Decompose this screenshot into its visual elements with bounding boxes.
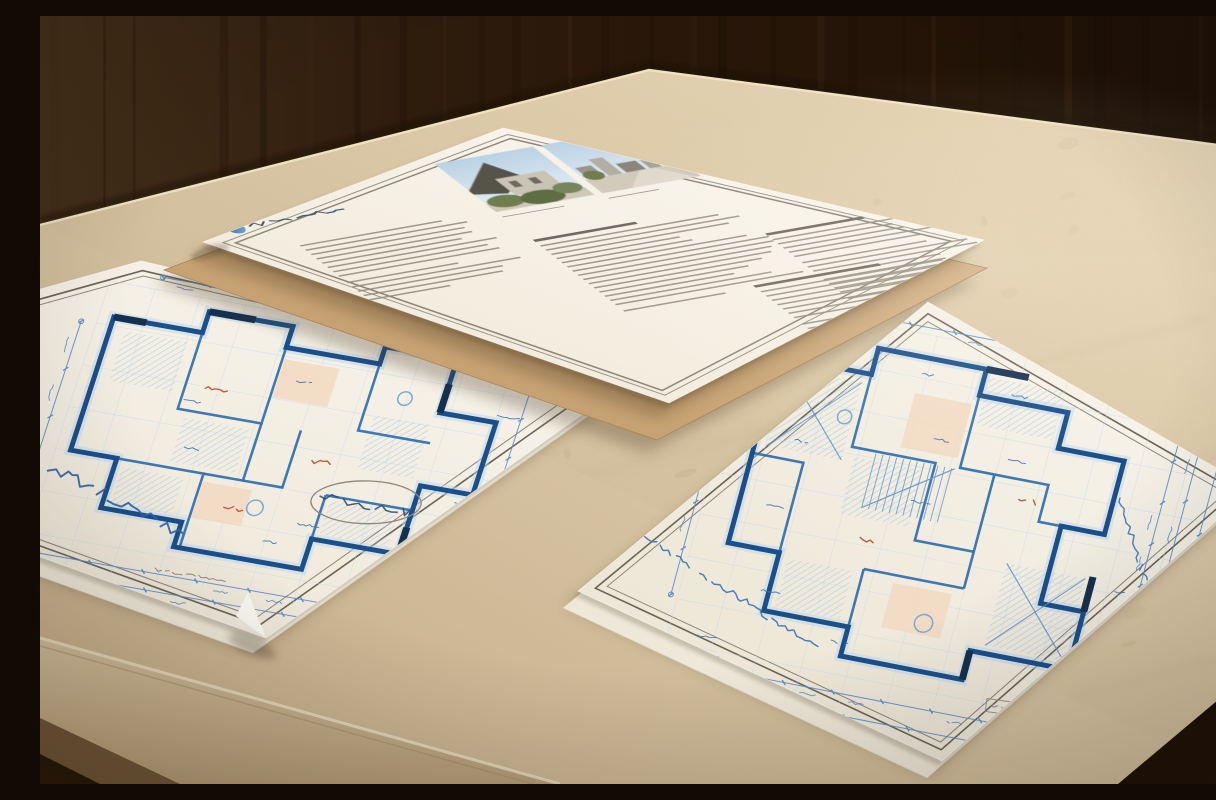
- vignette: [40, 16, 1216, 784]
- table-with-blueprints: [40, 16, 1216, 784]
- photo-scene: Three printed pages lying on the corner …: [40, 16, 1216, 784]
